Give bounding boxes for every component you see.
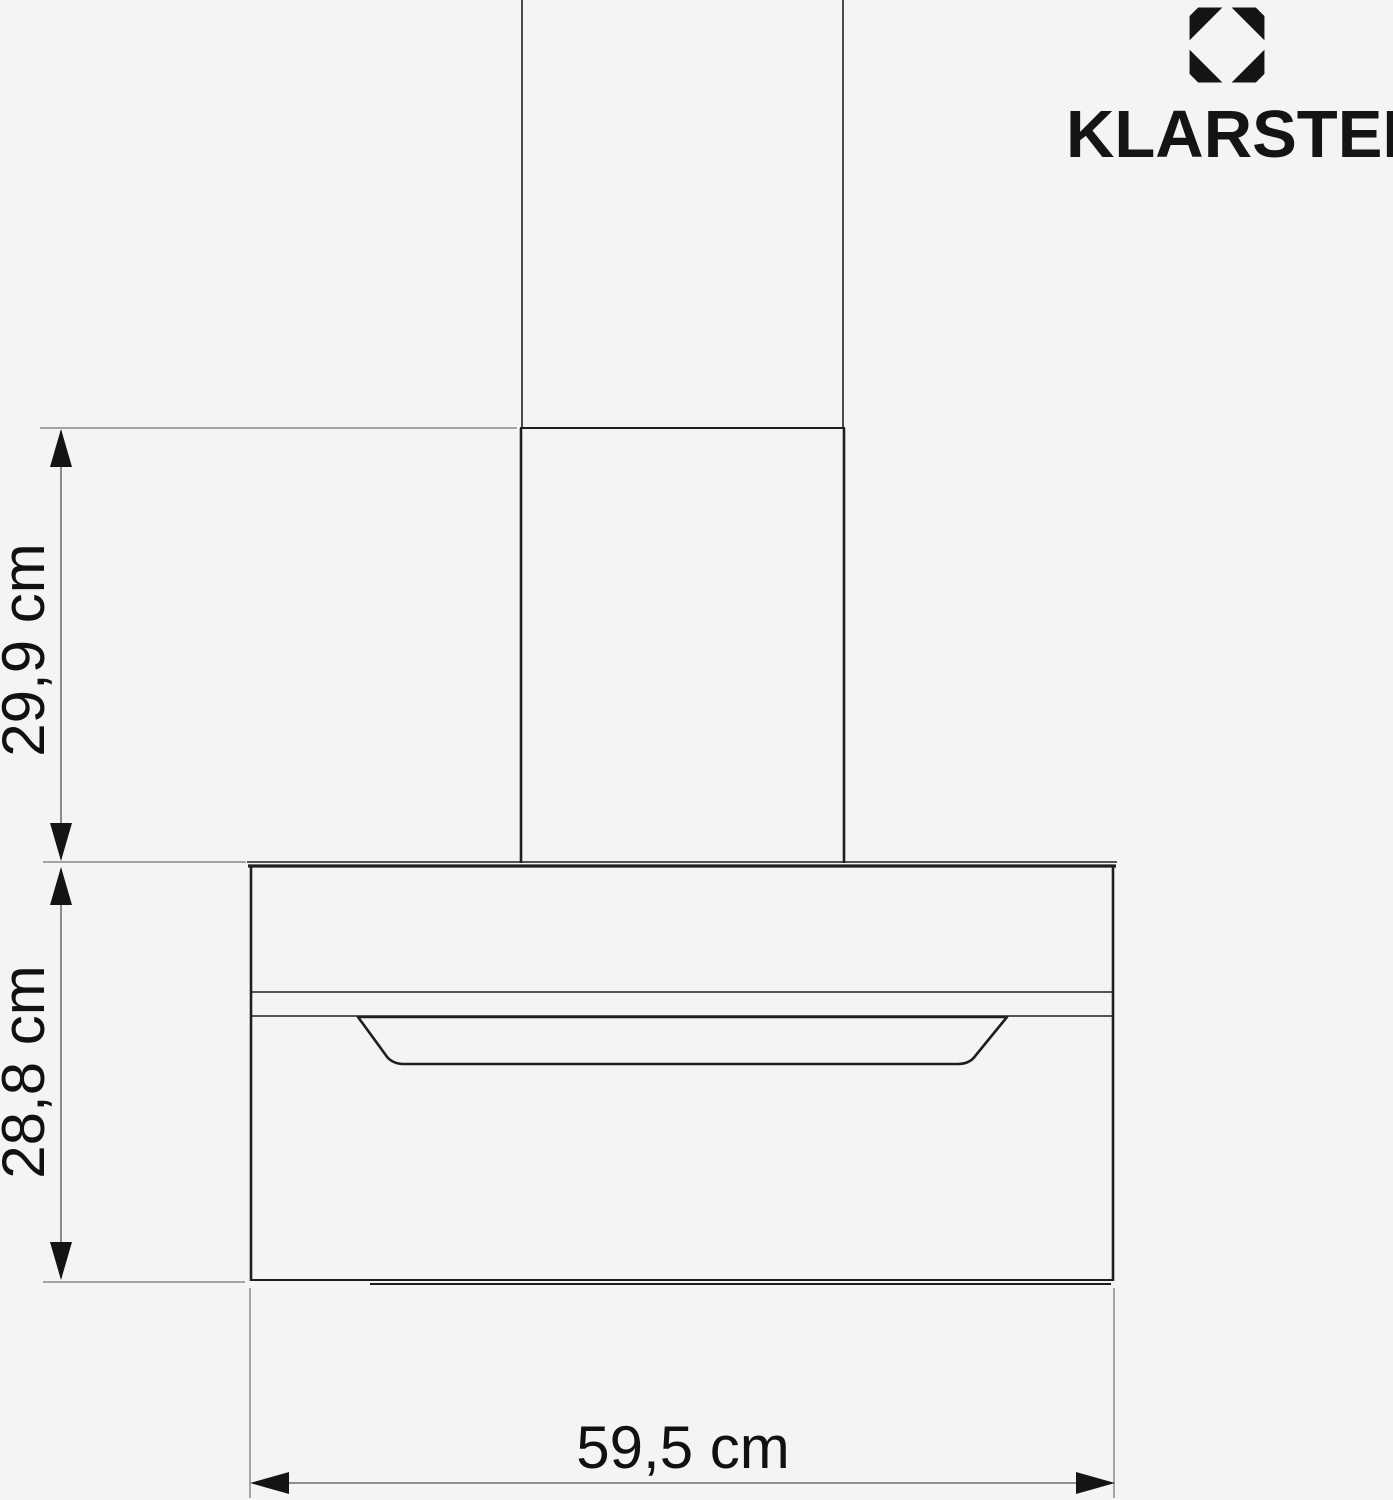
dimension-label-body-height: 28,8 cm [0, 965, 54, 1178]
chimney-upper-section [522, 0, 843, 429]
dimension-arrowheads [50, 429, 1115, 1494]
dimension-extension-lines [40, 428, 1114, 1498]
handle-recess [358, 1017, 1007, 1064]
chimney-lower-section [520, 428, 845, 863]
cooker-hood-technical-drawing [0, 0, 1393, 1500]
dimension-lines [61, 431, 1112, 1483]
technical-drawing-page: 29,9 cm 28,8 cm 59,5 cm KLARSTEIN [0, 0, 1393, 1500]
hood-body [247, 862, 1117, 1284]
dimension-label-body-width: 59,5 cm [576, 1418, 789, 1478]
dimension-label-chimney-height: 29,9 cm [0, 543, 54, 756]
